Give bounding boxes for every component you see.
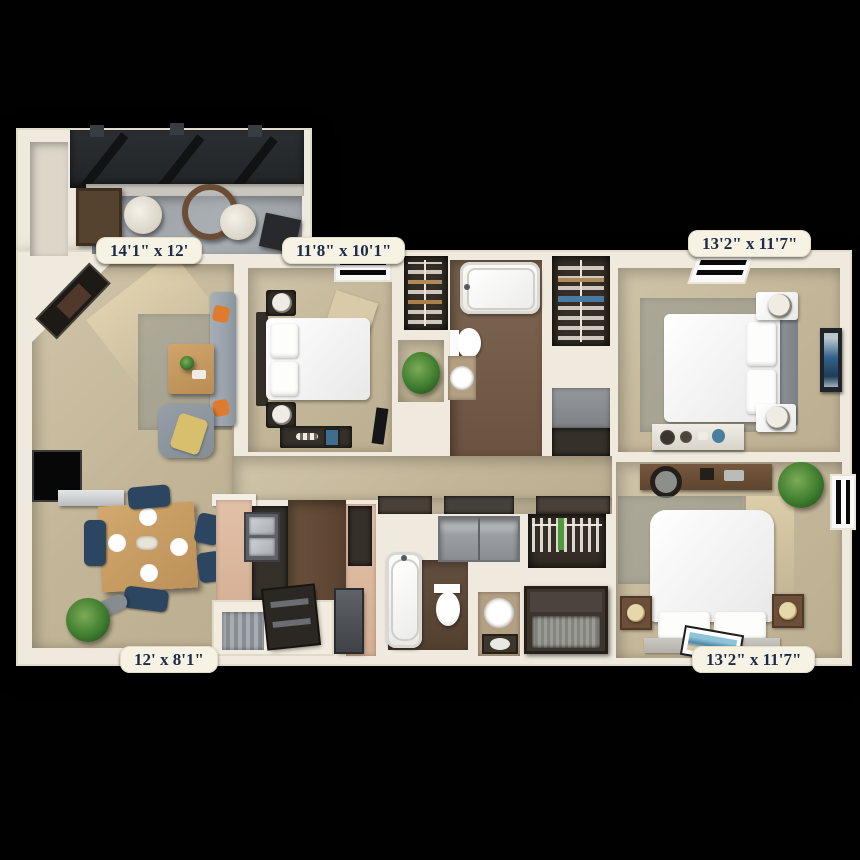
- bathroom1-tub: [460, 262, 540, 314]
- dimension-label-bedroom1: 11'8" x 10'1": [282, 237, 405, 264]
- dresser-top: [530, 592, 602, 612]
- hall-mat: [378, 496, 432, 514]
- coffee-table-plant: [180, 356, 194, 370]
- dimension-text: 14'1" x 12': [110, 241, 188, 260]
- console-tray: [724, 470, 744, 481]
- storage-room-floor: [30, 142, 68, 256]
- door-seam: [478, 518, 480, 560]
- dimension-label-bedroom3: 13'2" x 11'7": [692, 646, 815, 673]
- closet1-garment: [408, 300, 442, 304]
- closet-sliding-doors: [440, 518, 518, 560]
- bedroom2-pillow: [746, 322, 776, 366]
- patio-stool: [220, 204, 256, 240]
- pergola-post: [248, 125, 262, 137]
- hall-mat: [536, 496, 610, 514]
- dinner-plate: [170, 538, 188, 556]
- tub-faucet: [464, 284, 470, 290]
- dresser-vase-blue: [712, 429, 725, 443]
- pergola-post: [170, 123, 184, 135]
- sink-basin: [249, 538, 275, 556]
- dining-plant: [66, 598, 110, 642]
- stove-grate: [272, 618, 310, 628]
- bedroom3-window: [832, 476, 854, 528]
- dimension-text: 11'8" x 10'1": [296, 241, 391, 260]
- dinner-plate: [139, 508, 157, 526]
- closet1-garment: [408, 280, 442, 284]
- closet-clothes: [532, 518, 602, 552]
- dimension-text: 13'2" x 11'7": [702, 234, 797, 253]
- dimension-label-patio: 14'1" x 12': [96, 237, 202, 264]
- bathroom1-sink: [450, 366, 474, 390]
- closet-garment-green: [558, 518, 564, 550]
- refrigerator: [336, 590, 362, 652]
- dining-chair: [84, 520, 106, 566]
- table-centerpiece: [136, 536, 158, 550]
- console-box: [700, 468, 714, 480]
- dimension-text: 13'2" x 11'7": [706, 650, 801, 669]
- kitchen-sink: [246, 514, 278, 560]
- dresser-decor: [296, 433, 318, 440]
- closet2-garment: [558, 278, 604, 282]
- dining-chair: [127, 484, 171, 510]
- stove-grate: [270, 598, 308, 608]
- dimension-text: 12' x 8'1": [134, 650, 204, 669]
- bedroom2-window: [690, 256, 752, 282]
- bathroom1-toilet-bowl: [457, 328, 481, 358]
- floorplan-canvas: 14'1" x 12' 11'8" x 10'1" 13'2" x 11'7" …: [0, 0, 860, 860]
- storage-dresser: [524, 586, 608, 654]
- hallway-floor: [232, 456, 612, 500]
- dresser-bowl: [660, 430, 675, 445]
- bedroom2-lamp: [768, 294, 792, 318]
- sofa-pillow: [212, 305, 231, 324]
- hall-plant: [402, 352, 440, 394]
- bedroom3-lamp: [627, 604, 645, 622]
- bedroom1-pillow: [270, 362, 298, 396]
- coffee-table-tray: [192, 370, 206, 379]
- coffee-table: [168, 344, 214, 394]
- hall-mat: [444, 496, 514, 514]
- closet1-rod: [424, 260, 426, 326]
- dresser-tray: [698, 432, 708, 440]
- linen-counter: [552, 388, 610, 428]
- art-print: [824, 333, 838, 387]
- dresser-bowl: [680, 431, 692, 443]
- window-slats: [836, 480, 850, 524]
- closet2-garment-blue: [558, 296, 604, 302]
- bedroom1-pillow: [270, 324, 298, 358]
- linen-cabinet: [552, 428, 610, 456]
- bedroom1-lamp: [272, 293, 292, 313]
- dresser-frame: [326, 430, 338, 445]
- bathroom2-toilet-bowl: [436, 592, 460, 626]
- bedroom2-lamp: [766, 406, 790, 430]
- patio-stool: [124, 196, 162, 234]
- bedroom3-lamp: [779, 602, 797, 620]
- bedroom3-plant: [778, 462, 824, 508]
- pantry-shelves: [222, 612, 264, 650]
- bedroom3-bed: [650, 510, 774, 622]
- dimension-label-bedroom2: 13'2" x 11'7": [688, 230, 811, 257]
- tub-basin: [391, 559, 419, 641]
- dresser-front: [532, 616, 600, 648]
- sink-basin: [249, 517, 275, 535]
- console-bowl: [650, 466, 682, 498]
- sofa-pillow: [212, 399, 231, 418]
- pergola-post: [90, 125, 104, 137]
- dinner-plate: [140, 564, 158, 582]
- bathroom2-sink: [484, 598, 514, 628]
- mirror-reflection: [490, 638, 510, 650]
- kitchen-upper-cabinet: [348, 506, 372, 566]
- tub-basin: [467, 268, 535, 310]
- bedroom2-art: [820, 328, 842, 392]
- tv-shelf: [58, 490, 124, 506]
- tub-faucet: [401, 555, 407, 561]
- window-slats: [695, 260, 747, 278]
- bathroom2-tub: [386, 552, 422, 648]
- bedroom1-lamp: [272, 405, 292, 425]
- kitchen-stove: [263, 586, 319, 649]
- bathroom2-mirror: [482, 634, 518, 654]
- dimension-label-dining: 12' x 8'1": [120, 646, 218, 673]
- dinner-plate: [108, 534, 126, 552]
